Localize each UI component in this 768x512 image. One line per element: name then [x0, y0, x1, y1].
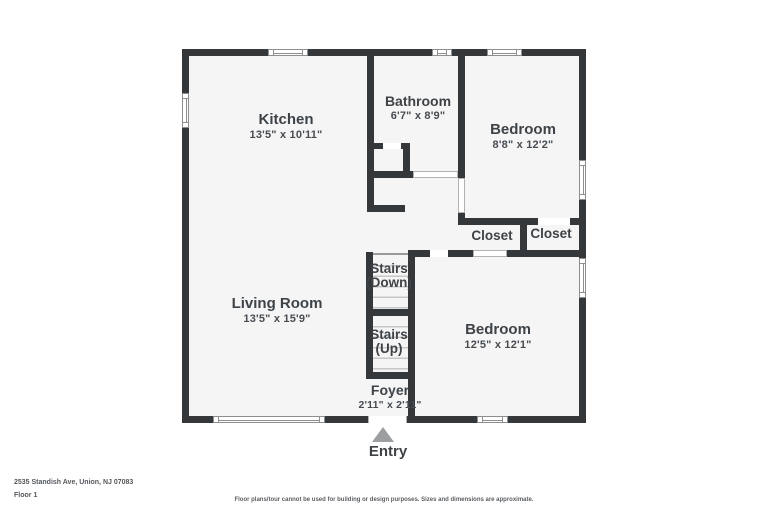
wall — [579, 298, 586, 423]
wall — [308, 49, 432, 56]
room-label-bedroom-1: Bedroom 8'8" x 12'2" — [490, 121, 556, 152]
room-dims: 8'8" x 12'2" — [490, 139, 556, 152]
entry-door-opening — [368, 416, 407, 423]
wall — [367, 205, 405, 212]
wall — [367, 143, 383, 149]
window — [487, 49, 522, 56]
room-dims: 13'5" x 10'11" — [250, 129, 323, 142]
door-opening — [413, 171, 458, 178]
wall — [570, 218, 586, 225]
address-text: 2535 Standish Ave, Union, NJ 07083 — [14, 479, 133, 486]
room-label-living-room: Living Room 13'5" x 15'9" — [232, 295, 323, 326]
room-dims: 6'7" x 8'9" — [385, 110, 451, 123]
wall — [458, 56, 465, 178]
room-name: Stairs — [366, 262, 412, 276]
wall — [182, 49, 268, 56]
wall — [522, 49, 586, 56]
wall — [448, 250, 473, 257]
wall — [508, 416, 586, 423]
room-sub: (Up) — [370, 342, 408, 356]
room-name: Living Room — [232, 295, 323, 313]
wall — [407, 416, 477, 423]
wall — [325, 416, 368, 423]
room-name: Kitchen — [250, 111, 323, 129]
room-label-stairs-up: Stairs (Up) — [370, 328, 408, 356]
room-name: Bedroom — [464, 321, 531, 339]
room-label-bathroom: Bathroom 6'7" x 8'9" — [385, 93, 451, 123]
room-dims: 13'5" x 15'9" — [232, 313, 323, 326]
window — [213, 416, 325, 423]
wall — [182, 128, 189, 423]
door-opening — [538, 218, 570, 225]
window — [579, 160, 586, 200]
wall — [366, 372, 415, 379]
window — [432, 49, 452, 56]
disclaimer-text: Floor plans/tour cannot be used for buil… — [0, 497, 768, 503]
room-name: Stairs — [370, 328, 408, 342]
window — [268, 49, 308, 56]
room-name: Bedroom — [490, 121, 556, 139]
window — [182, 93, 189, 128]
room-label-stairs-down: Stairs (Down) — [366, 262, 412, 290]
room-dims: 2'11" x 2'11" — [358, 399, 421, 412]
room-label-kitchen: Kitchen 13'5" x 10'11" — [250, 111, 323, 142]
room-label-closet-left: Closet — [471, 228, 512, 244]
entry-label: Entry — [369, 443, 407, 460]
room-dims: 12'5" x 12'1" — [464, 339, 531, 352]
door-opening — [430, 250, 448, 257]
wall — [458, 218, 538, 225]
floor-plan-page: Kitchen 13'5" x 10'11" Bathroom 6'7" x 8… — [0, 0, 768, 512]
room-sub: (Down) — [366, 276, 412, 290]
room-name: Bathroom — [385, 93, 451, 110]
wall — [452, 49, 487, 56]
room-label-closet-right: Closet — [530, 226, 571, 242]
window — [477, 416, 508, 423]
room-name: Foyer — [358, 382, 421, 399]
wall — [367, 171, 413, 178]
room-label-bedroom-2: Bedroom 12'5" x 12'1" — [464, 321, 531, 352]
wall — [367, 56, 374, 212]
room-name: Closet — [471, 228, 512, 244]
room-name: Closet — [530, 226, 571, 242]
door-opening — [383, 143, 401, 149]
wall — [366, 309, 415, 316]
door-opening — [473, 250, 507, 257]
wall — [507, 250, 586, 257]
door-opening — [458, 178, 465, 213]
window — [579, 258, 586, 298]
wall — [520, 225, 527, 250]
stairs-edge-line — [373, 253, 408, 255]
entry-arrow-icon — [372, 427, 394, 442]
wall — [182, 49, 189, 93]
wall — [579, 49, 586, 160]
room-label-foyer: Foyer 2'11" x 2'11" — [358, 382, 421, 411]
